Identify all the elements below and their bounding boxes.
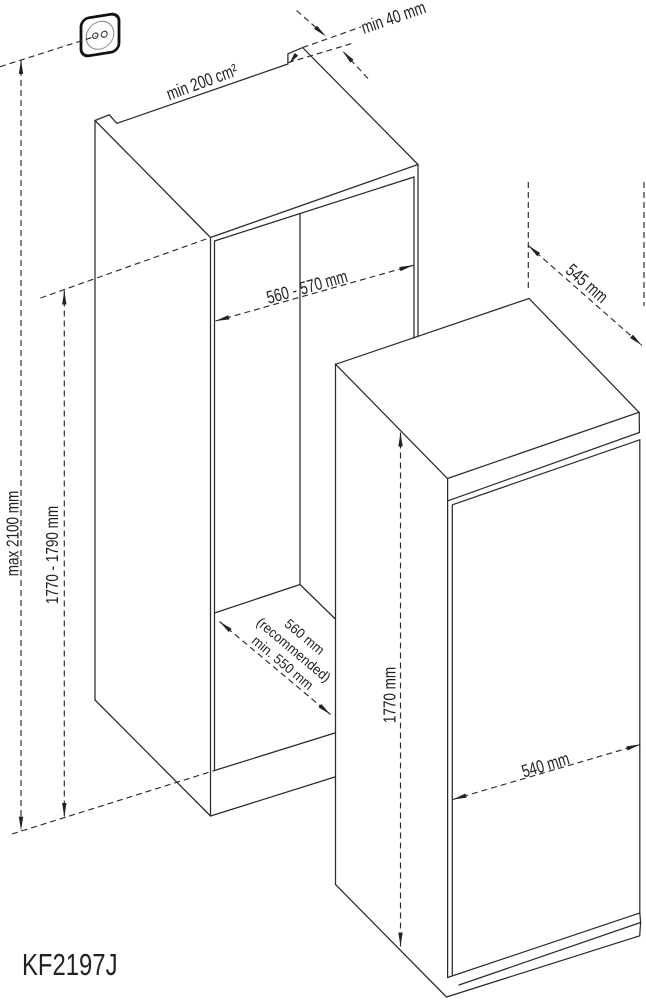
svg-text:545 mm: 545 mm [562, 261, 611, 307]
svg-text:KF2197J: KF2197J [22, 947, 118, 982]
svg-text:min 200 cm²: min 200 cm² [164, 61, 240, 104]
svg-text:560 - 570 mm: 560 - 570 mm [265, 267, 350, 308]
svg-text:540 mm: 540 mm [520, 750, 572, 782]
svg-text:1770 - 1790 mm: 1770 - 1790 mm [43, 506, 62, 604]
svg-text:min 40 mm: min 40 mm [359, 0, 428, 38]
svg-text:1770 mm: 1770 mm [381, 667, 400, 723]
svg-text:max 2100 mm: max 2100 mm [4, 491, 23, 576]
